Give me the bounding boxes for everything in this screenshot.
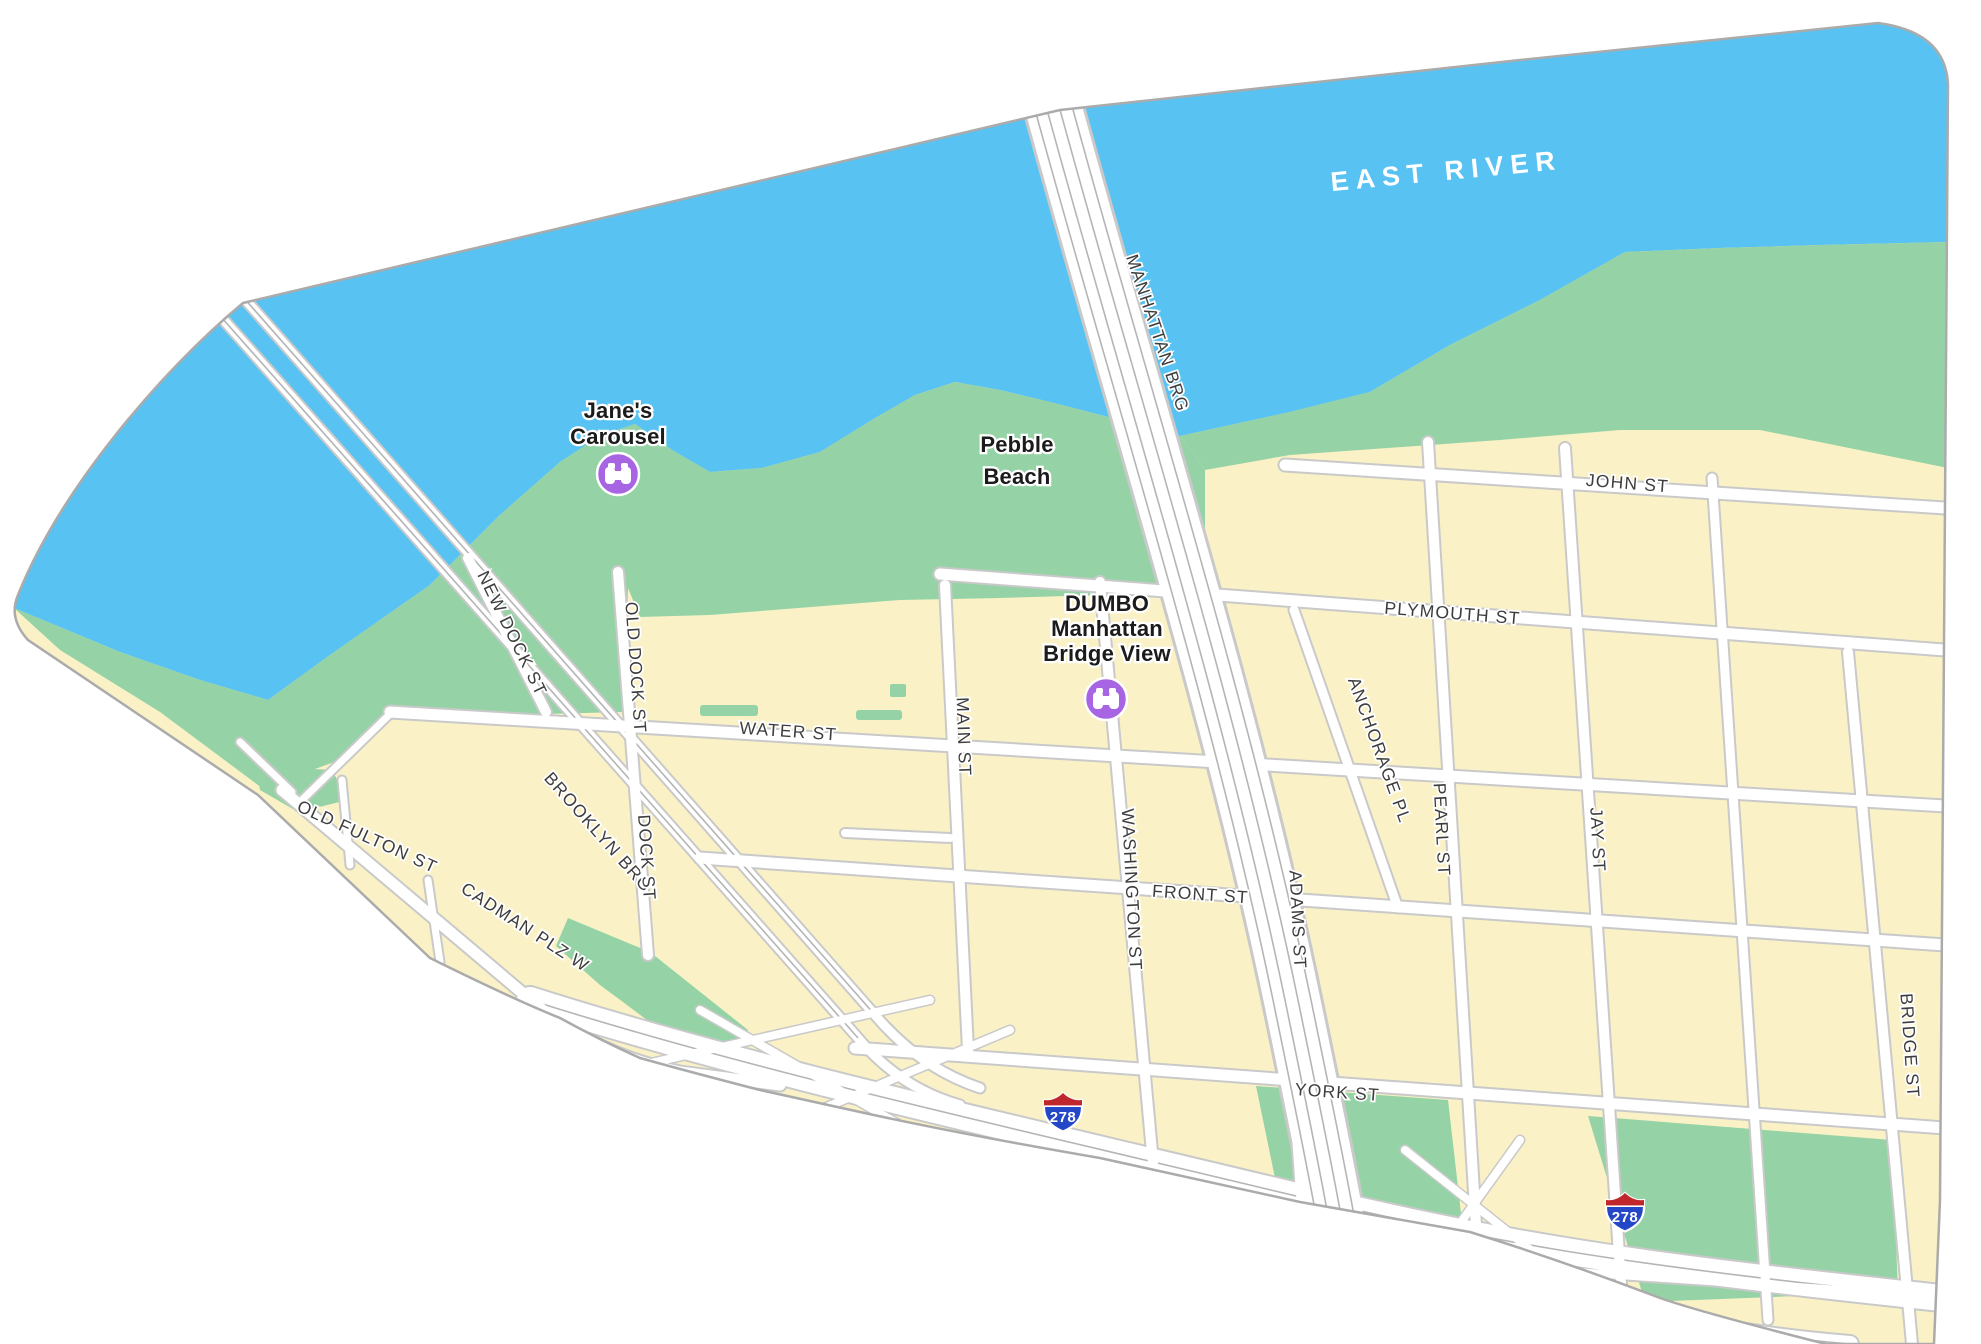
poi-label-line: Jane's [584, 398, 653, 423]
poi-label-line: DUMBO [1065, 591, 1149, 616]
water-st-green-dash [700, 705, 758, 716]
poi-label-line: Pebble [980, 432, 1053, 457]
dumbo-brooklyn-map[interactable]: EAST RIVER MANHATTAN BRG BROOKLYN BRG JO… [0, 0, 1981, 1344]
street-label-jay-st: JAY ST [1586, 807, 1609, 873]
park-block-bottom-small [1368, 1246, 1528, 1320]
poi-label-line: Beach [983, 464, 1050, 489]
map-canvas[interactable]: EAST RIVER MANHATTAN BRG BROOKLYN BRG JO… [0, 0, 1981, 1344]
street-label-main-st: MAIN ST [953, 697, 976, 777]
shield-number: 278 [1612, 1209, 1639, 1226]
shield-number: 278 [1050, 1109, 1077, 1126]
poi-label-line: Manhattan [1051, 616, 1163, 641]
water-st-green-dot [890, 684, 906, 697]
water-st-green-dash-2 [856, 710, 902, 720]
poi-label-line: Bridge View [1043, 641, 1171, 666]
poi-label-line: Carousel [570, 424, 666, 449]
